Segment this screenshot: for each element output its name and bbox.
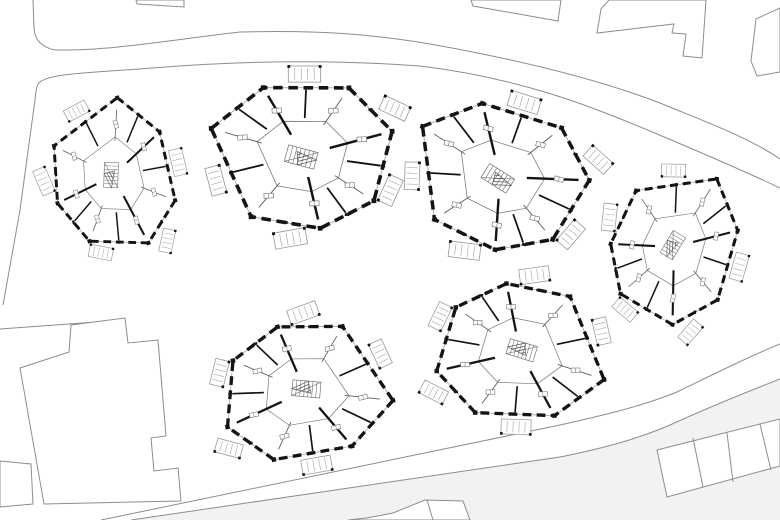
fixture: [272, 108, 282, 113]
fixture: [345, 183, 355, 188]
corner-column: [261, 85, 266, 90]
balcony-post: [529, 433, 532, 436]
threshold-mark: [368, 108, 372, 111]
balcony-post: [449, 240, 452, 243]
balcony-outline: [601, 203, 617, 231]
balcony-post: [319, 65, 322, 68]
balcony-post: [169, 252, 172, 255]
fixture: [507, 305, 516, 310]
balcony-post: [613, 230, 616, 233]
corner-column: [390, 129, 395, 134]
corner-column: [318, 226, 323, 231]
corner-column: [454, 305, 458, 309]
fixture: [264, 193, 274, 198]
balcony: [500, 419, 532, 436]
corner-column: [434, 369, 438, 373]
corner-column: [473, 410, 477, 414]
balcony-post: [479, 244, 482, 247]
site-plan-drawing: [0, 0, 780, 520]
balcony-outline: [661, 164, 685, 177]
balcony-post: [112, 248, 115, 251]
balcony-outline: [501, 419, 531, 435]
balcony: [287, 65, 321, 82]
threshold-mark: [479, 294, 483, 297]
balcony-outline: [448, 241, 481, 260]
balcony-post: [331, 468, 334, 471]
threshold-mark: [235, 106, 239, 109]
corner-column: [602, 377, 606, 381]
fixture: [461, 362, 470, 367]
balcony-post: [520, 283, 523, 286]
balcony-post: [287, 65, 290, 68]
corner-column: [249, 214, 254, 219]
corner-column: [568, 294, 572, 298]
threshold-mark: [585, 337, 589, 340]
corner-column: [371, 198, 376, 203]
balcony-post: [661, 175, 663, 177]
fixture: [238, 135, 248, 140]
threshold-mark: [536, 289, 540, 292]
balcony-post: [616, 204, 619, 207]
balcony: [404, 161, 421, 191]
threshold-mark: [283, 221, 287, 224]
fixture: [473, 320, 482, 325]
fixture: [538, 392, 547, 397]
fixture: [549, 313, 558, 318]
threshold-mark: [454, 390, 458, 393]
balcony-post: [272, 232, 275, 235]
balcony-post: [684, 176, 686, 178]
corner-column: [209, 126, 214, 131]
balcony-post: [417, 188, 420, 191]
threshold-mark: [229, 171, 233, 174]
balcony-post: [302, 473, 305, 476]
fixture: [328, 108, 338, 113]
threshold-mark: [304, 86, 308, 89]
threshold-mark: [513, 413, 517, 416]
threshold-mark: [577, 396, 581, 399]
threshold-mark: [444, 338, 448, 341]
threshold-mark: [345, 213, 349, 216]
balcony-post: [90, 243, 93, 246]
threshold-mark: [381, 164, 385, 167]
balcony: [661, 164, 687, 178]
balcony-post: [500, 432, 503, 435]
corner-column: [552, 413, 556, 417]
balcony-post: [303, 227, 306, 230]
balcony-post: [548, 279, 551, 282]
neighbor-building-south-west-annex: [0, 461, 33, 507]
balcony-outline: [288, 66, 320, 82]
fixture: [357, 137, 367, 142]
fixture: [486, 390, 495, 395]
fixture: [309, 201, 319, 206]
balcony-post: [174, 230, 177, 233]
balcony-post: [418, 161, 421, 164]
corner-column: [346, 85, 351, 90]
site-plan-page: [0, 0, 780, 520]
corner-column: [504, 281, 508, 285]
balcony-outline: [404, 162, 420, 190]
fixture: [571, 368, 580, 373]
